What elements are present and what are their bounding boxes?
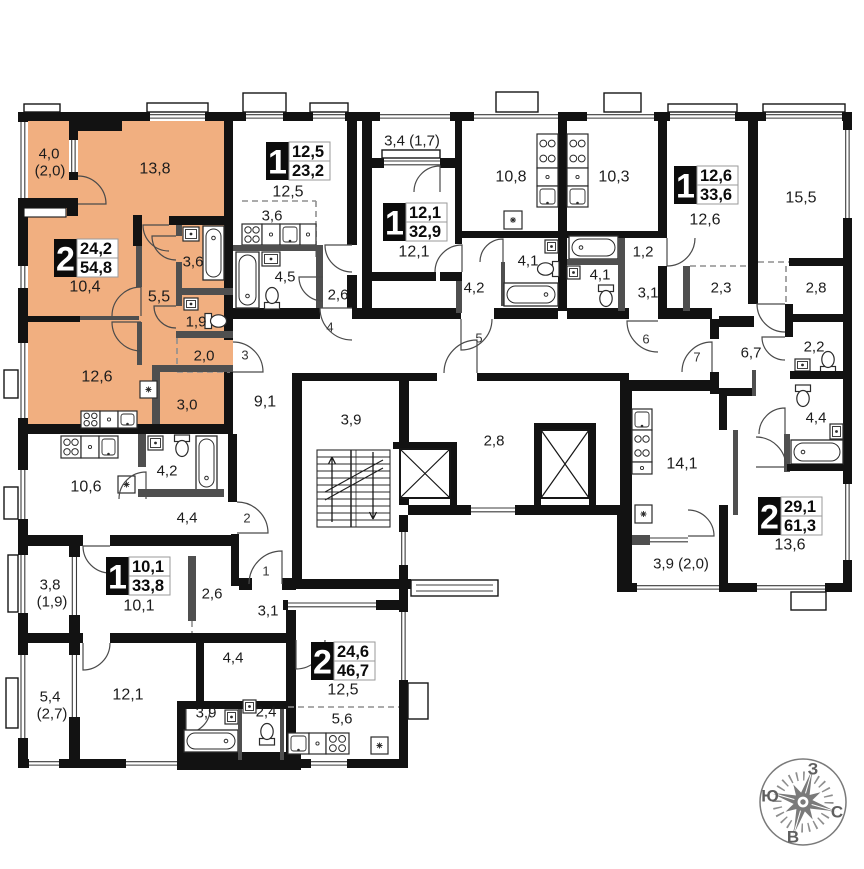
svg-text:23,2: 23,2 bbox=[292, 162, 324, 180]
svg-text:12,6: 12,6 bbox=[689, 212, 720, 229]
svg-text:3,9: 3,9 bbox=[196, 705, 217, 722]
svg-text:12,1: 12,1 bbox=[398, 244, 429, 261]
svg-text:2: 2 bbox=[313, 644, 332, 682]
svg-text:3,9: 3,9 bbox=[341, 412, 362, 429]
svg-text:4,2: 4,2 bbox=[157, 463, 178, 480]
svg-text:12,5: 12,5 bbox=[272, 184, 303, 201]
svg-text:61,3: 61,3 bbox=[784, 517, 816, 535]
svg-text:12,6: 12,6 bbox=[81, 369, 112, 386]
svg-text:10,4: 10,4 bbox=[69, 279, 100, 296]
svg-text:12,1: 12,1 bbox=[112, 687, 143, 704]
svg-text:1,2: 1,2 bbox=[633, 244, 654, 261]
svg-text:1: 1 bbox=[262, 564, 269, 579]
svg-text:13,8: 13,8 bbox=[139, 161, 170, 178]
svg-text:4,2: 4,2 bbox=[464, 280, 485, 297]
svg-text:32,9: 32,9 bbox=[409, 223, 441, 241]
svg-text:1: 1 bbox=[676, 168, 695, 206]
svg-text:2,6: 2,6 bbox=[202, 586, 223, 603]
svg-text:24,2: 24,2 bbox=[80, 240, 112, 258]
svg-text:4,4: 4,4 bbox=[806, 410, 827, 427]
svg-text:6,7: 6,7 bbox=[741, 345, 762, 362]
svg-text:2,8: 2,8 bbox=[806, 280, 827, 297]
svg-text:(1,9): (1,9) bbox=[37, 594, 68, 611]
svg-text:В: В bbox=[787, 828, 799, 847]
svg-text:12,5: 12,5 bbox=[327, 682, 358, 699]
svg-text:3,4 (1,7): 3,4 (1,7) bbox=[384, 133, 440, 150]
svg-text:13,6: 13,6 bbox=[774, 537, 805, 554]
svg-text:4,4: 4,4 bbox=[223, 650, 244, 667]
svg-text:54,8: 54,8 bbox=[80, 259, 112, 277]
svg-text:(2,7): (2,7) bbox=[37, 706, 68, 723]
svg-text:4,0: 4,0 bbox=[39, 146, 60, 163]
svg-text:2,4: 2,4 bbox=[256, 704, 277, 721]
svg-text:Ю: Ю bbox=[761, 787, 779, 806]
svg-text:33,8: 33,8 bbox=[132, 577, 164, 595]
svg-text:(2,0): (2,0) bbox=[35, 163, 66, 180]
svg-text:2,2: 2,2 bbox=[804, 339, 825, 356]
svg-text:10,6: 10,6 bbox=[70, 479, 101, 496]
svg-text:1,9: 1,9 bbox=[186, 314, 207, 331]
svg-text:46,7: 46,7 bbox=[337, 662, 369, 680]
svg-text:З: З bbox=[808, 760, 819, 779]
svg-text:3,6: 3,6 bbox=[183, 254, 204, 271]
svg-text:10,1: 10,1 bbox=[132, 558, 164, 576]
svg-text:4,4: 4,4 bbox=[177, 510, 198, 527]
svg-text:4: 4 bbox=[326, 320, 333, 335]
svg-text:6: 6 bbox=[642, 332, 649, 347]
svg-text:5,4: 5,4 bbox=[40, 689, 61, 706]
svg-text:3,0: 3,0 bbox=[177, 397, 198, 414]
svg-text:12,1: 12,1 bbox=[409, 204, 441, 222]
svg-text:2,8: 2,8 bbox=[484, 433, 505, 450]
svg-text:2,6: 2,6 bbox=[328, 287, 349, 304]
svg-text:33,6: 33,6 bbox=[700, 186, 732, 204]
svg-text:29,1: 29,1 bbox=[784, 498, 816, 516]
svg-text:10,3: 10,3 bbox=[598, 169, 629, 186]
svg-text:2,3: 2,3 bbox=[711, 280, 732, 297]
svg-text:3,8: 3,8 bbox=[40, 577, 61, 594]
svg-text:4,5: 4,5 bbox=[275, 269, 296, 286]
svg-text:9,1: 9,1 bbox=[254, 394, 276, 411]
svg-text:1: 1 bbox=[385, 205, 404, 243]
svg-text:5,5: 5,5 bbox=[148, 289, 170, 306]
svg-text:3,1: 3,1 bbox=[258, 603, 279, 620]
svg-text:3,9 (2,0): 3,9 (2,0) bbox=[653, 556, 709, 573]
svg-text:3: 3 bbox=[241, 348, 248, 363]
svg-text:2,0: 2,0 bbox=[194, 348, 215, 365]
svg-text:1: 1 bbox=[268, 144, 287, 182]
svg-text:10,8: 10,8 bbox=[495, 169, 526, 186]
svg-text:2: 2 bbox=[56, 241, 75, 279]
svg-text:10,1: 10,1 bbox=[123, 598, 154, 615]
svg-text:5,6: 5,6 bbox=[332, 711, 353, 728]
svg-text:7: 7 bbox=[693, 350, 700, 365]
svg-text:С: С bbox=[831, 803, 843, 822]
svg-text:15,5: 15,5 bbox=[785, 190, 816, 207]
svg-text:3,1: 3,1 bbox=[638, 285, 659, 302]
svg-text:4,1: 4,1 bbox=[590, 267, 611, 284]
svg-text:3,6: 3,6 bbox=[262, 208, 283, 225]
svg-text:12,5: 12,5 bbox=[292, 143, 324, 161]
svg-text:4,1: 4,1 bbox=[518, 253, 539, 270]
svg-text:24,6: 24,6 bbox=[337, 643, 369, 661]
svg-text:12,6: 12,6 bbox=[700, 167, 732, 185]
svg-text:1: 1 bbox=[108, 559, 127, 597]
svg-text:2: 2 bbox=[243, 511, 250, 526]
svg-text:2: 2 bbox=[760, 499, 779, 537]
svg-text:14,1: 14,1 bbox=[666, 456, 697, 473]
